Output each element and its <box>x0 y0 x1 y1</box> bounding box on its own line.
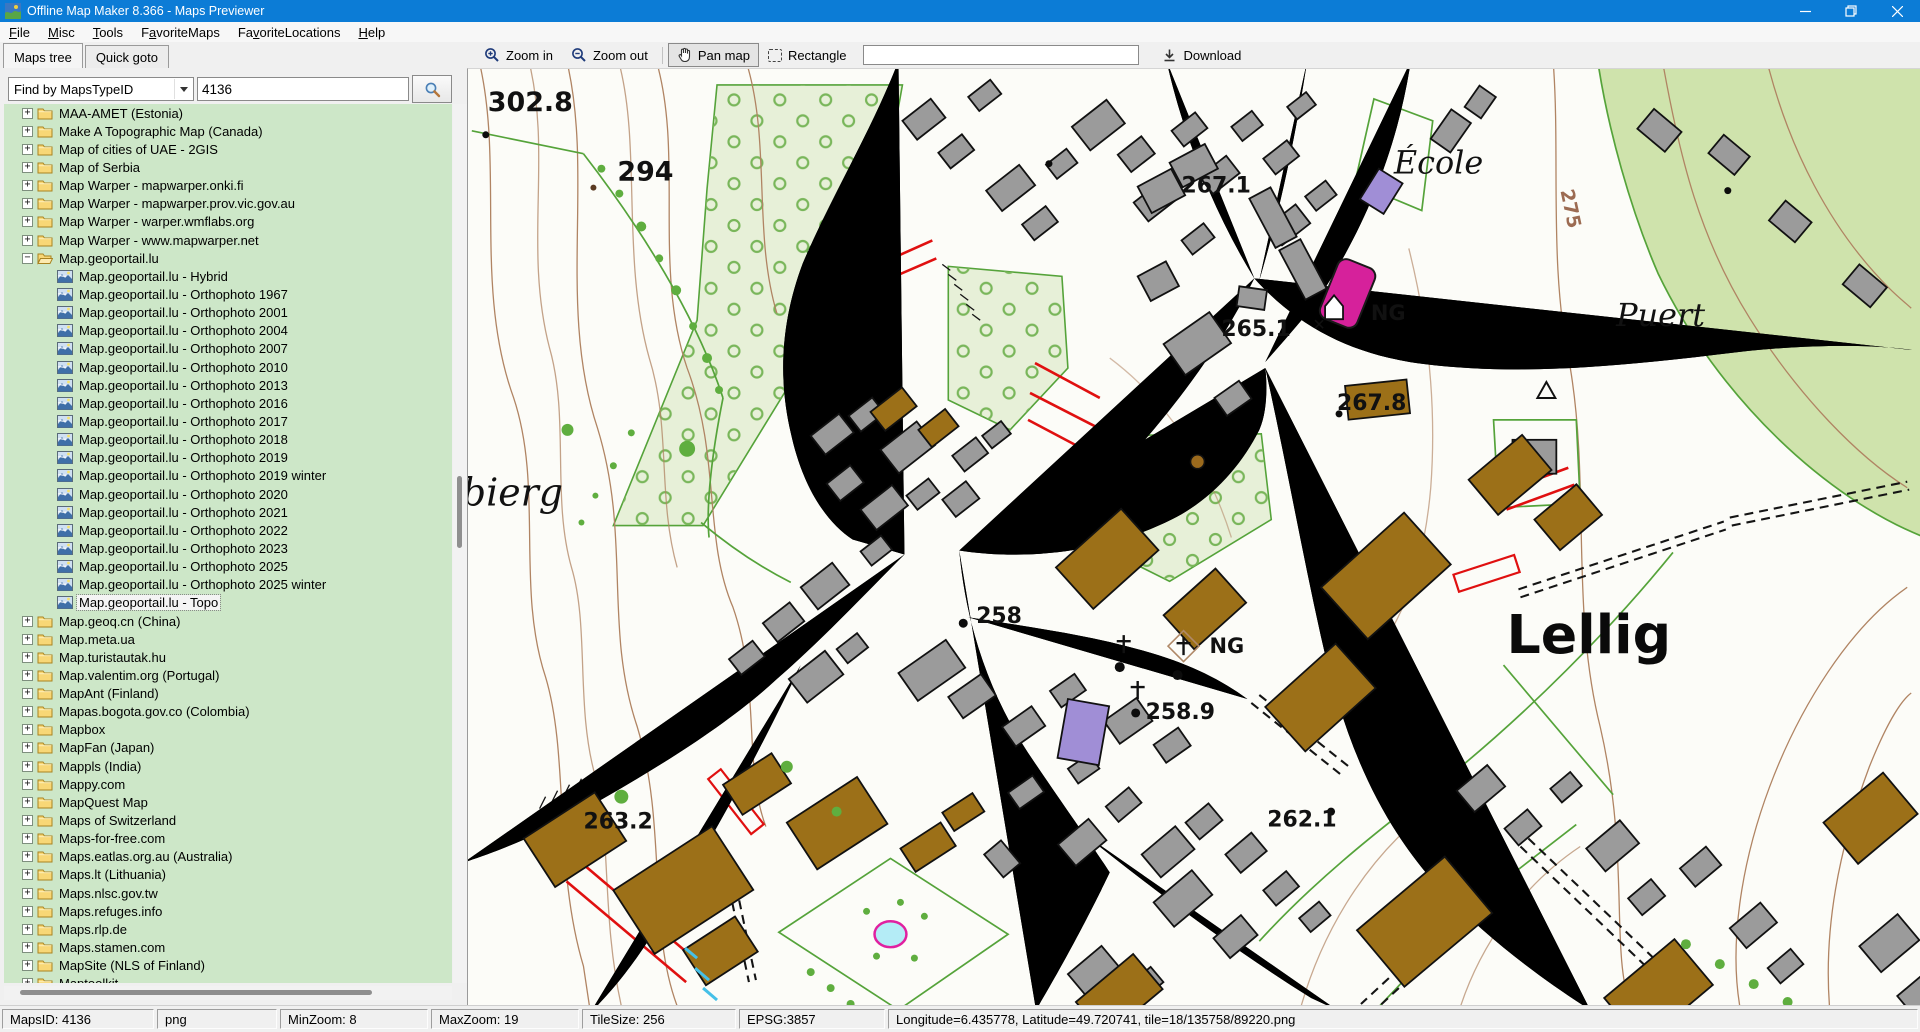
tree-item[interactable]: +MapAnt (Finland) <box>4 685 452 703</box>
folder-icon <box>37 125 53 138</box>
tree-item-label: MAA-AMET (Estonia) <box>57 106 185 121</box>
folder-icon <box>37 760 53 773</box>
menu-misc[interactable]: Misc <box>39 23 84 42</box>
scrollbar-thumb[interactable] <box>457 476 462 548</box>
folder-icon <box>37 941 53 954</box>
tree-item[interactable]: Map.geoportail.lu - Orthophoto 2016 <box>4 394 452 412</box>
tree-item[interactable]: +Map Warper - warper.wmflabs.org <box>4 213 452 231</box>
tree-item[interactable]: Map.geoportail.lu - Orthophoto 2004 <box>4 322 452 340</box>
tree-item-label: Maps.refuges.info <box>57 904 164 919</box>
tree-item-label: Maps-for-free.com <box>57 831 167 846</box>
tree-item[interactable]: +MapQuest Map <box>4 793 452 811</box>
ng-label: NG <box>1209 634 1244 658</box>
tree-item-label: Map.geoportail.lu - Topo <box>77 595 220 610</box>
tree-item[interactable]: Map.geoportail.lu - Orthophoto 2007 <box>4 340 452 358</box>
tree-item-label: Map.geoportail.lu <box>57 251 161 266</box>
tree-item-label: MapAnt (Finland) <box>57 686 161 701</box>
map-layer-icon <box>57 542 73 555</box>
tree-horizontal-scrollbar[interactable] <box>4 986 452 1000</box>
tree-item-label: Map.geoportail.lu - Orthophoto 2010 <box>77 360 290 375</box>
expand-icon[interactable]: + <box>22 652 33 663</box>
tree-item[interactable]: +Map.turistautak.hu <box>4 648 452 666</box>
expand-icon[interactable]: + <box>22 162 33 173</box>
expand-icon[interactable]: + <box>22 688 33 699</box>
tree-item[interactable]: +Maps.lt (Lithuania) <box>4 866 452 884</box>
search-mode-select[interactable]: Find by MapsTypeID <box>8 77 194 101</box>
tree-item[interactable]: +Mapas.bogota.gov.co (Colombia) <box>4 703 452 721</box>
tree-item-label: Map of cities of UAE - 2GIS <box>57 142 220 157</box>
menu-bar: FileMiscToolsFavoriteMapsFavoriteLocatio… <box>0 22 1920 43</box>
elevation-label: 267.8 <box>1337 391 1406 416</box>
folder-icon <box>37 161 53 174</box>
folder-icon <box>37 832 53 845</box>
tree-item-label: Map.meta.ua <box>57 632 137 647</box>
expand-icon[interactable]: + <box>22 960 33 971</box>
place-label: Puert <box>1615 296 1705 334</box>
tree-item-label: Map Warper - mapwarper.onki.fi <box>57 178 245 193</box>
folder-icon <box>37 143 53 156</box>
town-label: Lellig <box>1507 603 1672 666</box>
place-label: bierg <box>468 471 563 515</box>
expand-icon[interactable]: + <box>22 742 33 753</box>
download-button[interactable]: Download <box>1153 44 1250 67</box>
elevation-label: 267.1 <box>1182 174 1251 199</box>
status-maps-id: MapsID: 4136 <box>2 1009 154 1029</box>
tree-item[interactable]: +Map Warper - mapwarper.onki.fi <box>4 177 452 195</box>
tree-item[interactable]: +Maps.refuges.info <box>4 902 452 920</box>
menu-favoritemaps[interactable]: FavoriteMaps <box>132 23 229 42</box>
status-format: png <box>157 1009 277 1029</box>
map-layer-icon <box>57 379 73 392</box>
folder-icon <box>37 778 53 791</box>
tree-item-label: Map.geoportail.lu - Orthophoto 2019 <box>77 450 290 465</box>
tree-vertical-scrollbar[interactable] <box>453 104 467 983</box>
tree-item[interactable]: −Map.geoportail.lu <box>4 249 452 267</box>
expand-icon[interactable]: + <box>22 942 33 953</box>
folder-icon <box>37 887 53 900</box>
tree-item[interactable]: +Mappls (India) <box>4 757 452 775</box>
folder-icon <box>37 905 53 918</box>
status-coordinates: Longitude=6.435778, Latitude=49.720741, … <box>888 1009 1918 1029</box>
folder-icon <box>37 651 53 664</box>
rectangle-label: Rectangle <box>788 48 847 63</box>
tree-item[interactable]: Map.geoportail.lu - Orthophoto 2021 <box>4 503 452 521</box>
tree-item-label: Map.geoportail.lu - Orthophoto 2025 <box>77 559 290 574</box>
folder-icon <box>37 633 53 646</box>
folder-icon <box>37 705 53 718</box>
expand-icon[interactable]: + <box>22 144 33 155</box>
menu-tools[interactable]: Tools <box>84 23 132 42</box>
tree-item[interactable]: +Maptoolkit <box>4 975 452 983</box>
tree-item[interactable]: +Maps.rlp.de <box>4 920 452 938</box>
folder-open-icon <box>37 252 53 265</box>
folder-icon <box>37 850 53 863</box>
expand-icon[interactable]: + <box>22 634 33 645</box>
scrollbar-thumb[interactable] <box>20 990 372 995</box>
map-canvas[interactable]: 302.8 294 École 275 Puert 267.1 265.1 26… <box>467 68 1920 1005</box>
place-label: École <box>1393 144 1483 182</box>
tree-item-label: Mappy.com <box>57 777 127 792</box>
tree-item-label: Maps of Switzerland <box>57 813 178 828</box>
map-layer-icon <box>57 306 73 319</box>
download-label: Download <box>1183 48 1241 63</box>
zoom-out-icon <box>571 47 587 63</box>
tree-item-label: Map Warper - mapwarper.prov.vic.gov.au <box>57 196 297 211</box>
tree-item-label: Map.turistautak.hu <box>57 650 168 665</box>
tree-item[interactable]: Map.geoportail.lu - Topo <box>4 594 452 612</box>
window-title: Offline Map Maker 8.366 - Maps Previewer <box>27 4 264 18</box>
tree-item[interactable]: +Map of Serbia <box>4 158 452 176</box>
tree-item-label: Map Warper - warper.wmflabs.org <box>57 214 256 229</box>
tree-item-label: MapFan (Japan) <box>57 740 156 755</box>
tree-item[interactable]: Map.geoportail.lu - Orthophoto 2020 <box>4 485 452 503</box>
map-layer-icon <box>57 342 73 355</box>
status-tile-size: TileSize: 256 <box>582 1009 736 1029</box>
tree-item-label: Maptoolkit <box>57 976 120 983</box>
expand-icon[interactable]: + <box>22 180 33 191</box>
pan-map-label: Pan map <box>698 48 750 63</box>
tree-item[interactable]: Map.geoportail.lu - Orthophoto 2023 <box>4 539 452 557</box>
tree-item[interactable]: Map.geoportail.lu - Hybrid <box>4 267 452 285</box>
expand-icon[interactable]: + <box>22 108 33 119</box>
search-mode-value: Find by MapsTypeID <box>14 82 133 97</box>
map-layer-icon <box>57 270 73 283</box>
tree-item-label: Maps.lt (Lithuania) <box>57 867 168 882</box>
expand-icon[interactable]: + <box>22 616 33 627</box>
map-layer-icon <box>57 560 73 573</box>
tree-item[interactable]: Map.geoportail.lu - Orthophoto 2022 <box>4 521 452 539</box>
folder-icon <box>37 923 53 936</box>
zoom-out-label: Zoom out <box>593 48 648 63</box>
tree-item[interactable]: +Maps.nlsc.gov.tw <box>4 884 452 902</box>
tree-item-label: Make A Topographic Map (Canada) <box>57 124 265 139</box>
expand-icon[interactable]: + <box>22 706 33 717</box>
sidebar-tabs: Maps tree Quick goto <box>0 42 467 68</box>
tree-item[interactable]: Map.geoportail.lu - Orthophoto 2018 <box>4 431 452 449</box>
tree-item-label: Map.geoportail.lu - Orthophoto 2023 <box>77 541 290 556</box>
tree-item[interactable]: Map.geoportail.lu - Orthophoto 2017 <box>4 412 452 430</box>
tree-item-label: Map.geoportail.lu - Orthophoto 2001 <box>77 305 290 320</box>
folder-icon <box>37 179 53 192</box>
status-max-zoom: MaxZoom: 19 <box>431 1009 579 1029</box>
tree-item-label: Maps.nlsc.gov.tw <box>57 886 160 901</box>
tree-item[interactable]: +Map of cities of UAE - 2GIS <box>4 140 452 158</box>
toolbar-input[interactable] <box>863 45 1139 65</box>
collapse-icon[interactable]: − <box>22 253 33 264</box>
elevation-label: 258.9 <box>1146 700 1215 725</box>
search-button[interactable] <box>412 75 452 103</box>
expand-icon[interactable]: + <box>22 724 33 735</box>
restore-button[interactable] <box>1828 0 1874 22</box>
tree-item-label: Maps.eatlas.org.au (Australia) <box>57 849 234 864</box>
menu-help[interactable]: Help <box>349 23 394 42</box>
expand-icon[interactable]: + <box>22 797 33 808</box>
tree-item-label: Map.geoportail.lu - Orthophoto 2021 <box>77 505 290 520</box>
download-icon <box>1162 48 1177 63</box>
ng-label: NG <box>1371 301 1406 325</box>
tab-quick-goto[interactable]: Quick goto <box>85 45 169 68</box>
tree-item-label: Map.geoportail.lu - Orthophoto 2020 <box>77 487 290 502</box>
toolbar-separator <box>662 47 663 64</box>
search-icon <box>424 81 441 98</box>
tree-item[interactable]: +Map Warper - www.mapwarper.net <box>4 231 452 249</box>
tree-item[interactable]: +Map.valentim.org (Portugal) <box>4 666 452 684</box>
tree-item-label: MapSite (NLS of Finland) <box>57 958 207 973</box>
chevron-down-icon[interactable] <box>174 79 192 99</box>
tree-item[interactable]: +MapFan (Japan) <box>4 739 452 757</box>
map-layer-icon <box>57 433 73 446</box>
folder-icon <box>37 959 53 972</box>
zoom-in-button[interactable]: Zoom in <box>475 43 562 67</box>
tree-item-label: Maps.rlp.de <box>57 922 129 937</box>
folder-icon <box>37 615 53 628</box>
minimize-icon <box>1800 6 1811 17</box>
tree-item-label: Map.geoq.cn (China) <box>57 614 182 629</box>
tree-item[interactable]: +Map Warper - mapwarper.prov.vic.gov.au <box>4 195 452 213</box>
tree-item-label: Map.geoportail.lu - Orthophoto 2018 <box>77 432 290 447</box>
tree-item[interactable]: +Map.geoq.cn (China) <box>4 612 452 630</box>
tree-item[interactable]: Map.geoportail.lu - Orthophoto 2019 <box>4 449 452 467</box>
elevation-label: 262.1 <box>1267 808 1336 833</box>
tree-item-label: Map Warper - www.mapwarper.net <box>57 233 261 248</box>
tree-item-label: Map.geoportail.lu - Orthophoto 2004 <box>77 323 290 338</box>
tree-item-label: Map.geoportail.lu - Orthophoto 1967 <box>77 287 290 302</box>
tree-item-label: Map.geoportail.lu - Orthophoto 2007 <box>77 341 290 356</box>
folder-icon <box>37 723 53 736</box>
tree-item-label: Map.valentim.org (Portugal) <box>57 668 221 683</box>
folder-icon <box>37 234 53 247</box>
map-layer-icon <box>57 324 73 337</box>
folder-icon <box>37 197 53 210</box>
tree-item-label: Map.geoportail.lu - Hybrid <box>77 269 230 284</box>
tree-item[interactable]: Map.geoportail.lu - Orthophoto 2019 wint… <box>4 467 452 485</box>
map-layer-icon <box>57 415 73 428</box>
tree-item-label: Map.geoportail.lu - Orthophoto 2025 wint… <box>77 577 328 592</box>
map-layer-icon <box>57 397 73 410</box>
elevation-label: 265.1 <box>1221 317 1290 342</box>
tree-item[interactable]: Map.geoportail.lu - Orthophoto 2010 <box>4 358 452 376</box>
map-layer-icon <box>57 596 73 609</box>
contour-label: 275 <box>1555 187 1585 230</box>
map-layer-icon <box>57 524 73 537</box>
tree-item[interactable]: Map.geoportail.lu - Orthophoto 2013 <box>4 376 452 394</box>
title-bar: Offline Map Maker 8.366 - Maps Previewer <box>0 0 1920 22</box>
sidebar: Maps tree Quick goto Find by MapsTypeID … <box>0 42 468 1005</box>
map-layer-icon <box>57 288 73 301</box>
rectangle-button[interactable]: Rectangle <box>759 44 856 67</box>
tree-item[interactable]: +Maps.eatlas.org.au (Australia) <box>4 848 452 866</box>
folder-icon <box>37 977 53 983</box>
folder-icon <box>37 107 53 120</box>
tree-item-label: Mappls (India) <box>57 759 143 774</box>
tab-maps-tree[interactable]: Maps tree <box>3 43 83 68</box>
z oom-out-button[interactable]: Zoom out <box>562 43 657 67</box>
status-min-zoom: MinZoom: 8 <box>280 1009 428 1029</box>
tree-item-label: Mapbox <box>57 722 107 737</box>
folder-icon <box>37 669 53 682</box>
expand-icon[interactable]: + <box>22 869 33 880</box>
maps-tree: +MAA-AMET (Estonia)+Make A Topographic M… <box>4 104 452 983</box>
expand-icon[interactable]: + <box>22 833 33 844</box>
folder-icon <box>37 215 53 228</box>
menu-favoritelocations[interactable]: FavoriteLocations <box>229 23 350 42</box>
elevation-label: 258 <box>976 604 1022 629</box>
expand-icon[interactable]: + <box>22 888 33 899</box>
elevation-label: 302.8 <box>488 87 573 118</box>
folder-icon <box>37 868 53 881</box>
zoom-in-icon <box>484 47 500 63</box>
expand-icon[interactable]: + <box>22 761 33 772</box>
close-button[interactable] <box>1874 0 1920 22</box>
folder-icon <box>37 796 53 809</box>
map-layer-icon <box>57 578 73 591</box>
elevation-label: 263.2 <box>583 810 652 835</box>
folder-icon <box>37 741 53 754</box>
expand-icon[interactable]: + <box>22 779 33 790</box>
expand-icon[interactable]: + <box>22 235 33 246</box>
zoom-in-label: Zoom in <box>506 48 553 63</box>
folder-icon <box>37 814 53 827</box>
map-panel: Zoom in Zoom out Pan map Rectangle Downl… <box>467 42 1920 1005</box>
search-row: Find by MapsTypeID <box>0 68 467 109</box>
pond <box>875 921 907 947</box>
triangle-symbol <box>1537 382 1555 398</box>
close-icon <box>1892 6 1903 17</box>
tree-item-label: Maps.stamen.com <box>57 940 167 955</box>
map-layer-icon <box>57 506 73 519</box>
tree-item[interactable]: +MAA-AMET (Estonia) <box>4 104 452 122</box>
tree-item[interactable]: Map.geoportail.lu - Orthophoto 2001 <box>4 304 452 322</box>
map-layer-icon <box>57 488 73 501</box>
menu-file[interactable]: File <box>0 23 39 42</box>
tree-item-label: Map.geoportail.lu - Orthophoto 2017 <box>77 414 290 429</box>
tree-item[interactable]: +Maps-for-free.com <box>4 830 452 848</box>
tree-item-label: Mapas.bogota.gov.co (Colombia) <box>57 704 252 719</box>
tree-item[interactable]: +Maps of Switzerland <box>4 811 452 829</box>
minimize-button[interactable] <box>1782 0 1828 22</box>
expand-icon[interactable]: + <box>22 978 33 983</box>
expand-icon[interactable]: + <box>22 815 33 826</box>
expand-icon[interactable]: + <box>22 126 33 137</box>
pan-map-button[interactable]: Pan map <box>668 43 759 67</box>
expand-icon[interactable]: + <box>22 851 33 862</box>
tree-item-label: MapQuest Map <box>57 795 150 810</box>
tree-item-label: Map of Serbia <box>57 160 142 175</box>
map-toolbar: Zoom in Zoom out Pan map Rectangle Downl… <box>467 42 1920 68</box>
tree-item[interactable]: +Make A Topographic Map (Canada) <box>4 122 452 140</box>
search-input[interactable] <box>197 77 409 101</box>
public-building <box>1058 699 1110 765</box>
tree-item[interactable]: +Map.meta.ua <box>4 630 452 648</box>
tree-item[interactable]: +Mapbox <box>4 721 452 739</box>
map-layer-icon <box>57 361 73 374</box>
folder-icon <box>37 687 53 700</box>
map-layer-icon <box>57 469 73 482</box>
status-epsg: EPSG:3857 <box>739 1009 885 1029</box>
tree-item-label: Map.geoportail.lu - Orthophoto 2016 <box>77 396 290 411</box>
tree-item[interactable]: Map.geoportail.lu - Orthophoto 2025 wint… <box>4 576 452 594</box>
map-layer-icon <box>57 451 73 464</box>
tree-item-label: Map.geoportail.lu - Orthophoto 2019 wint… <box>77 468 328 483</box>
tree-item-label: Map.geoportail.lu - Orthophoto 2022 <box>77 523 290 538</box>
elevation-label: 294 <box>617 157 673 188</box>
expand-icon[interactable]: + <box>22 906 33 917</box>
app-icon <box>5 3 21 19</box>
restore-icon <box>1845 5 1857 17</box>
rectangle-icon <box>768 49 782 62</box>
tree-item[interactable]: +Mappy.com <box>4 775 452 793</box>
red-outline <box>1453 555 1519 592</box>
tree-item-label: Map.geoportail.lu - Orthophoto 2013 <box>77 378 290 393</box>
expand-icon[interactable]: + <box>22 670 33 681</box>
tree-item[interactable]: +MapSite (NLS of Finland) <box>4 957 452 975</box>
expand-icon[interactable]: + <box>22 198 33 209</box>
tree-item[interactable]: Map.geoportail.lu - Orthophoto 1967 <box>4 285 452 303</box>
tree-item[interactable]: +Maps.stamen.com <box>4 938 452 956</box>
tree-item[interactable]: Map.geoportail.lu - Orthophoto 2025 <box>4 558 452 576</box>
expand-icon[interactable]: + <box>22 924 33 935</box>
expand-icon[interactable]: + <box>22 216 33 227</box>
hand-icon <box>677 47 692 63</box>
status-bar: MapsID: 4136 png MinZoom: 8 MaxZoom: 19 … <box>0 1005 1920 1032</box>
